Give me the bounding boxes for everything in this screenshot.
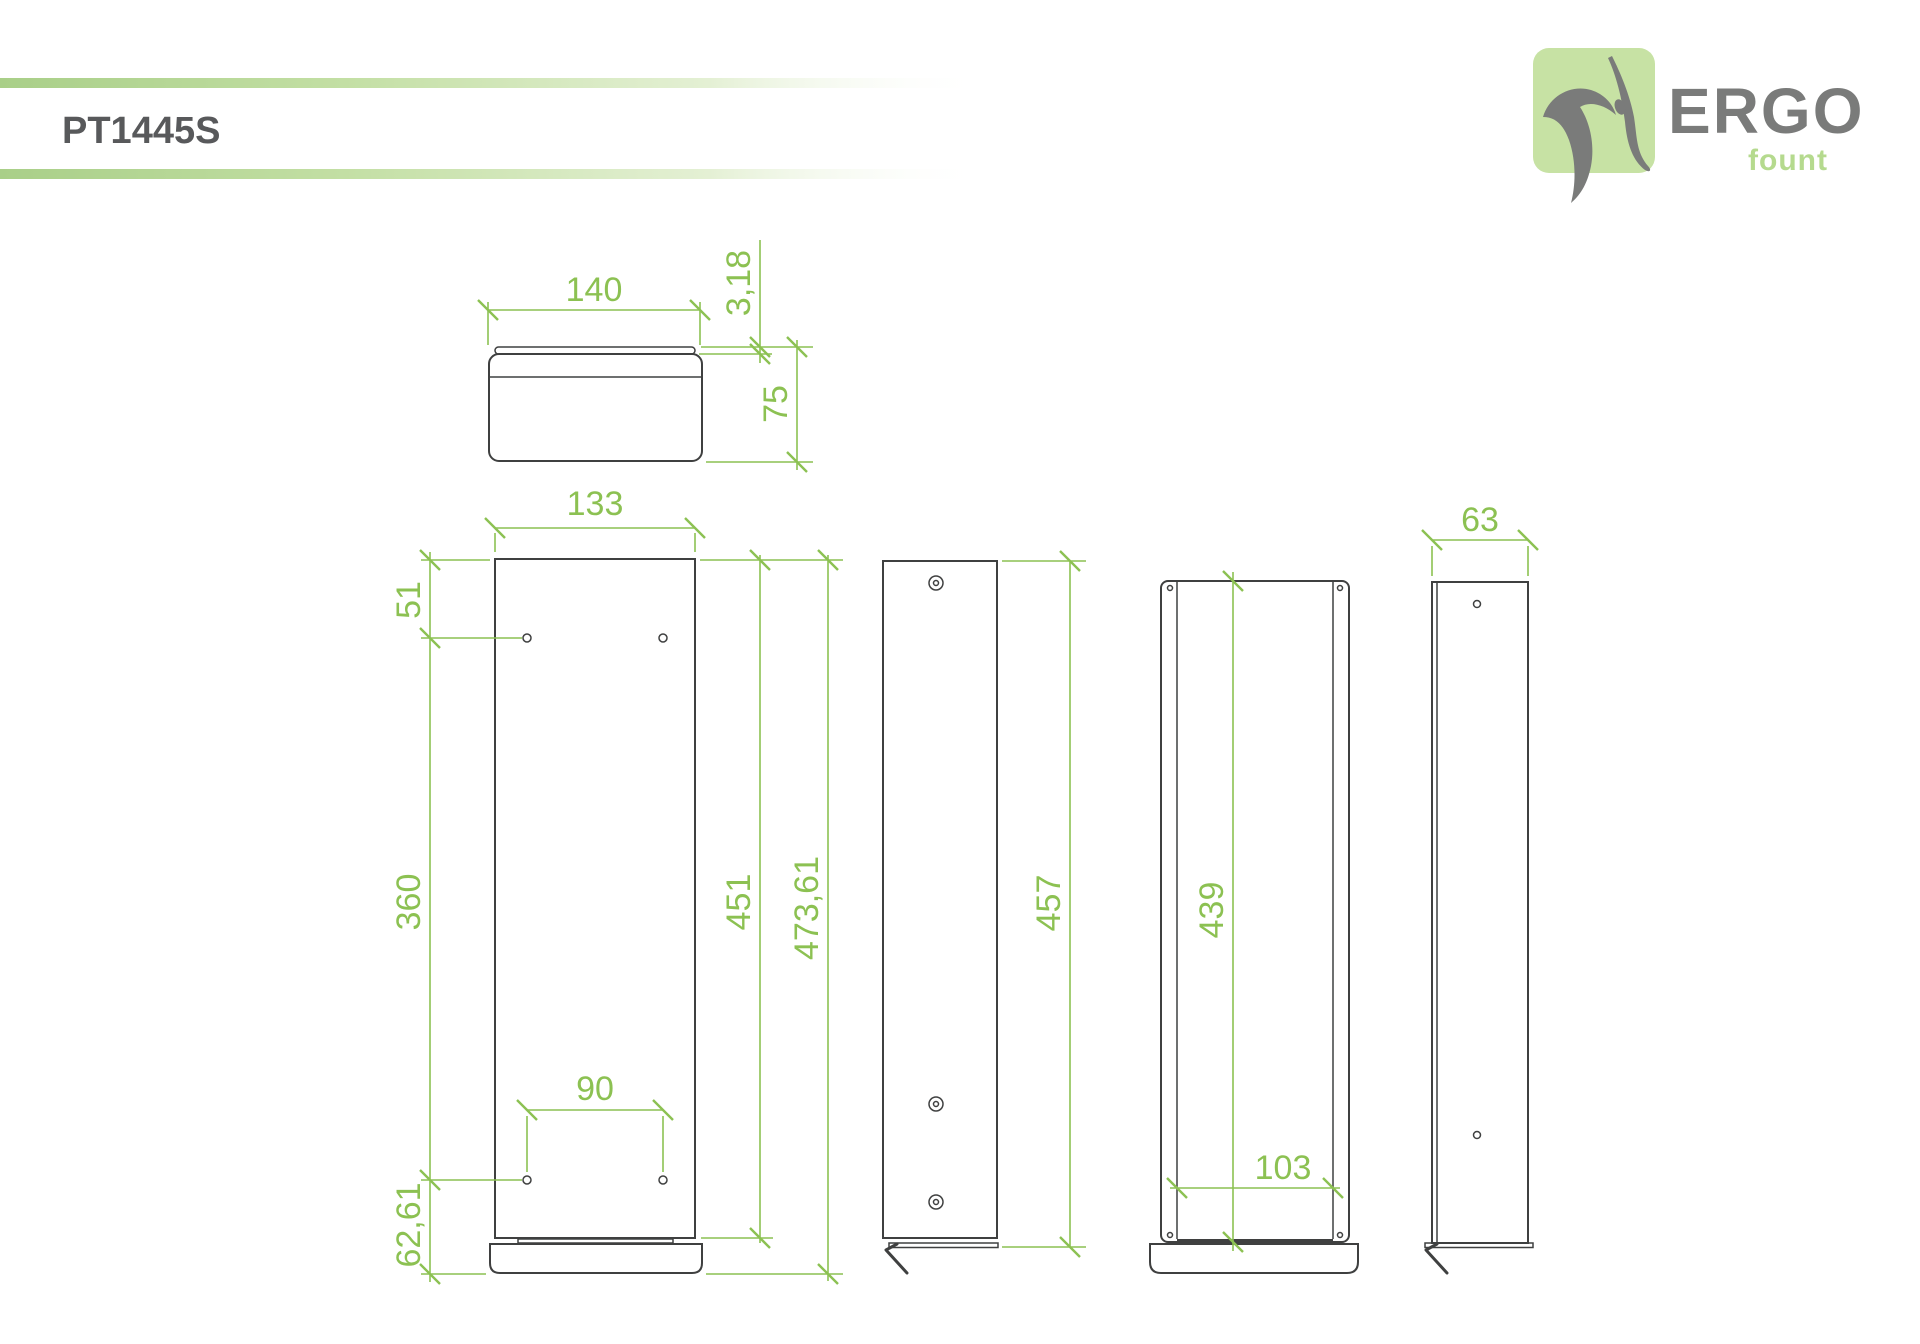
front-view: 133 51 360 62,61 90 — [390, 485, 843, 1284]
logo-brand-text: ERGO — [1668, 75, 1864, 147]
screw-hole — [1474, 601, 1481, 608]
back-view-plate-edge — [1177, 1239, 1333, 1243]
front-view-plate-edge — [518, 1239, 673, 1243]
dim-base-width: 140 — [478, 271, 710, 345]
back-view: 439 103 — [1150, 571, 1358, 1273]
dim-label-hole-horizontal-spacing: 90 — [576, 1070, 614, 1108]
dim-label-wall-thickness: 3,18 — [720, 250, 758, 316]
logo-sub-text: fount — [1748, 144, 1828, 177]
mount-hole — [659, 1176, 667, 1184]
side-view-outline — [883, 561, 997, 1238]
logo: ERGO fount — [1533, 48, 1864, 203]
dim-label-column-height: 451 — [720, 874, 758, 931]
top-view-base-outline — [489, 354, 702, 461]
front-view-panel-outline — [495, 559, 695, 1238]
right-dimension-chain: 451 473,61 — [700, 550, 843, 1284]
mount-hole — [523, 634, 531, 642]
corner-hole — [1168, 1233, 1173, 1238]
dim-label-hole-vertical-spacing: 360 — [390, 874, 428, 931]
mount-hole — [523, 1176, 531, 1184]
top-view-column-wall — [495, 347, 695, 354]
screw-hole-center — [934, 1102, 939, 1107]
screw-hole-center — [934, 581, 939, 586]
screw-hole-center — [934, 1200, 939, 1205]
page-title: PT1445S — [62, 110, 220, 152]
dim-inner-height: 439 — [1193, 571, 1243, 1252]
dim-label-top-hole-offset: 51 — [390, 581, 428, 619]
back-view-base — [1150, 1244, 1358, 1273]
profile-view-outline — [1432, 582, 1528, 1243]
dim-label-depth: 63 — [1461, 501, 1499, 539]
drawing-sheet: PT1445S ERGO fount 140 3,18 — [0, 0, 1920, 1344]
back-view-outline — [1161, 581, 1349, 1242]
dim-column-width: 133 — [485, 485, 705, 552]
header-top-bar — [0, 78, 985, 88]
dim-label-base-depth: 75 — [757, 385, 795, 423]
dim-inner-width: 103 — [1167, 1149, 1343, 1198]
corner-hole — [1338, 1233, 1343, 1238]
profile-view-foot-hook — [1426, 1244, 1447, 1273]
front-view-base — [490, 1244, 702, 1273]
header-bottom-bar — [0, 169, 985, 179]
dim-depth: 63 — [1422, 501, 1538, 576]
dim-label-total-height: 473,61 — [788, 856, 826, 960]
profile-view-plate-edge — [1425, 1243, 1533, 1248]
screw-hole — [1474, 1132, 1481, 1139]
header: PT1445S — [0, 78, 985, 179]
profile-view: 63 — [1422, 501, 1538, 1273]
dim-hole-horizontal-spacing: 90 — [517, 1070, 673, 1172]
screw-hole — [929, 1195, 943, 1209]
dim-overall-height: 457 — [1002, 551, 1086, 1257]
dim-label-inner-width: 103 — [1255, 1149, 1312, 1187]
top-view: 140 3,18 75 — [478, 240, 813, 472]
corner-hole — [1338, 586, 1343, 591]
dim-label-overall-height: 457 — [1030, 875, 1068, 932]
screw-hole — [929, 1097, 943, 1111]
corner-hole — [1168, 586, 1173, 591]
dim-label-bottom-hole-offset: 62,61 — [390, 1182, 428, 1267]
screw-hole — [929, 576, 943, 590]
side-view-foot-hook — [886, 1244, 907, 1273]
side-view: 457 — [883, 551, 1086, 1273]
dim-label-inner-height: 439 — [1193, 882, 1231, 939]
dim-label-column-width: 133 — [567, 485, 624, 523]
side-view-plate-edge — [889, 1243, 998, 1248]
left-dimension-chain: 51 360 62,61 — [390, 550, 522, 1284]
mount-hole — [659, 634, 667, 642]
dim-label-base-width: 140 — [566, 271, 623, 309]
